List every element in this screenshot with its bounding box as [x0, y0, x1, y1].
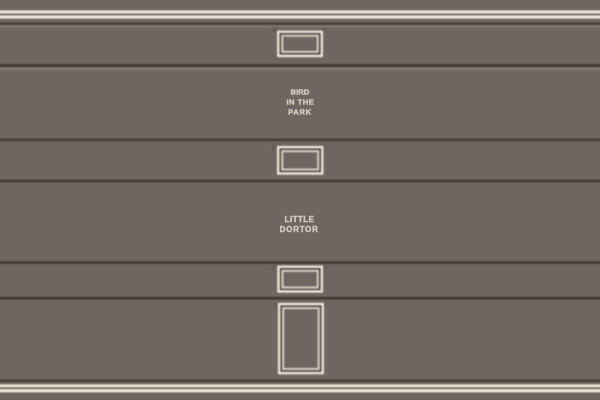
svg-text:DORTOR: DORTOR — [280, 225, 319, 234]
svg-text:IN THE: IN THE — [286, 98, 314, 107]
svg-text:PARK: PARK — [288, 107, 312, 116]
svg-text:LITTLE: LITTLE — [285, 215, 315, 224]
svg-text:BIRD: BIRD — [291, 88, 310, 97]
